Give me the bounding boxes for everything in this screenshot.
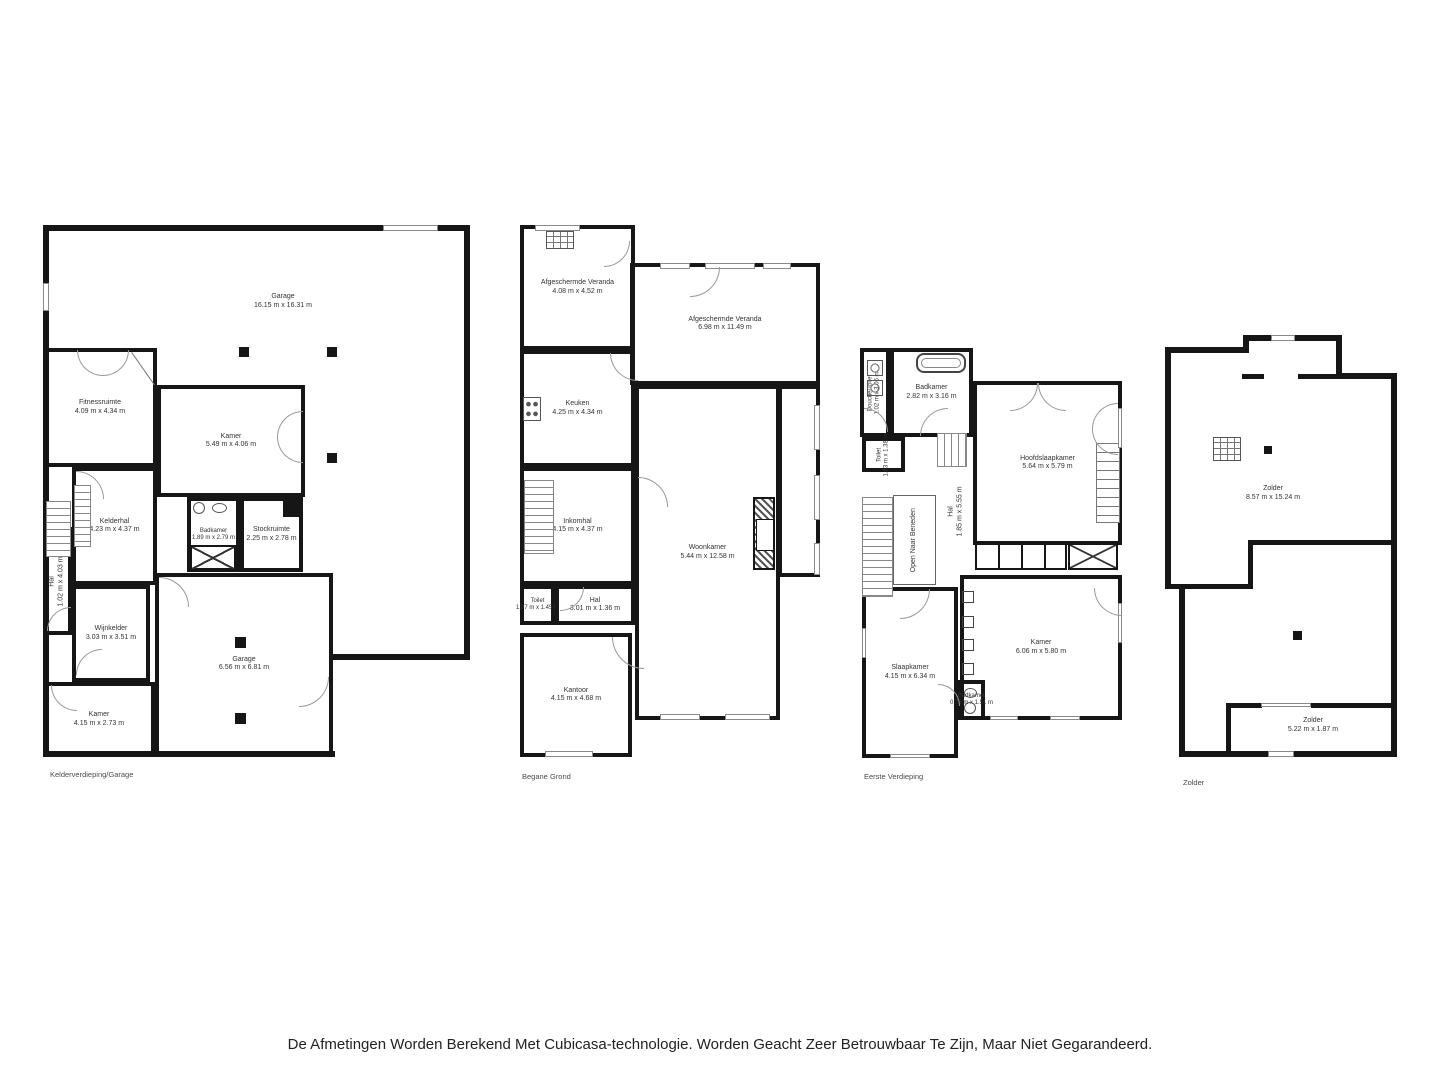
cabinet-icon [962,616,974,628]
floor-plan-ground: Afgeschermde Veranda4.08 m x 4.52 m Afge… [520,225,825,760]
window [43,283,49,311]
outer-wall-bottom-right [331,654,470,660]
window [1261,703,1311,707]
window [814,475,820,520]
room-open-naar-beneden: Open Naar Beneden [893,495,936,585]
outer-wall-right [1391,373,1397,757]
closet-box [1068,543,1118,570]
outer-wall-left-upper [1165,347,1171,589]
cabinet-icon [962,591,974,603]
mid-wall-step [1248,540,1253,589]
sink-icon [964,702,976,714]
window [660,263,690,269]
floor-plan-first: Douche/Toilet1.02 m x 3.06 m Badkamer2.8… [860,348,1125,760]
window [545,751,593,757]
stairs-icon [524,480,554,554]
washer-icon [867,380,883,396]
window [1268,751,1294,757]
bathtub-icon [916,353,966,373]
closet-cells [975,543,1067,570]
window [814,543,820,575]
room-zolder-small-label: Zolder 5.22 m x 1.87 m [1253,717,1373,734]
cabinet-icon [962,663,974,675]
window [725,714,770,720]
dormer-stub-right [1298,374,1342,379]
room-zolder-label: Zolder 8.57 m x 15.24 m [1213,485,1333,502]
closet-slats [1096,443,1120,523]
floor-plan-attic: Zolder 8.57 m x 15.24 m Zolder 5.22 m x … [1165,335,1408,757]
column-post [327,453,337,463]
window [814,405,820,450]
floor-caption-basement: Kelderverdieping/Garage [50,770,133,779]
washer-icon [867,360,883,376]
mid-wall-right [1248,540,1395,545]
window [660,714,700,720]
stairs-icon [937,433,967,467]
room-veranda-large: Afgeschermde Veranda6.98 m x 11.49 m [630,263,820,385]
outer-wall-top-right [1342,373,1395,379]
window [990,716,1018,720]
vent-grid-icon [1213,437,1241,461]
stove-icon [523,397,541,421]
shower-box [190,545,236,571]
column-post [235,713,246,724]
room-toilet: Toilet1.63 m x 1.38 m [862,437,905,472]
zolder2-wall-top-b [1311,703,1395,708]
outer-wall-top-left [1165,347,1249,353]
window [1271,335,1295,341]
room-toilet: Toilet1.07 m x 1.45 m [520,585,555,625]
floor-plan-basement-garage: Garage 16.15 m x 16.31 m Fitnessruimte4.… [43,225,470,757]
column-post [235,637,246,648]
column-post [239,347,249,357]
column-post [1293,631,1302,640]
window [535,225,580,231]
toilet-icon [964,688,977,698]
window [890,754,930,758]
zolder2-wall-top-a [1226,703,1262,708]
window [1118,408,1122,448]
stairs-icon [46,501,71,557]
disclaimer-text: De Afmetingen Worden Berekend Met Cubica… [0,1036,1440,1053]
window [1050,716,1080,720]
window [763,263,791,269]
toilet-icon [212,503,227,513]
fireplace-inner [756,519,774,551]
outer-wall-right [464,225,470,660]
zolder2-wall-left [1226,703,1231,757]
floor-caption-attic: Zolder [1183,778,1204,787]
floorplan-page: { "colors": { "wall": "#161616", "room_l… [0,0,1440,1080]
cabinet-icon [962,639,974,651]
skylight-grid-icon [546,231,574,249]
column-post [327,347,337,357]
sink-icon [193,502,205,514]
room-garage-label: Garage 16.15 m x 16.31 m [203,293,363,310]
stairs-icon [862,497,893,597]
column-post [1264,446,1272,454]
floor-caption-first: Eerste Verdieping [864,772,923,781]
window [383,225,438,231]
outer-wall-left-lower [1179,587,1185,757]
window [862,628,866,658]
column-post [283,499,301,517]
room-badkamer-small: Badkamer0.76 m x 1.51 m [958,680,985,720]
dormer-stub-left [1242,374,1264,379]
floor-caption-ground: Begane Grond [522,772,571,781]
